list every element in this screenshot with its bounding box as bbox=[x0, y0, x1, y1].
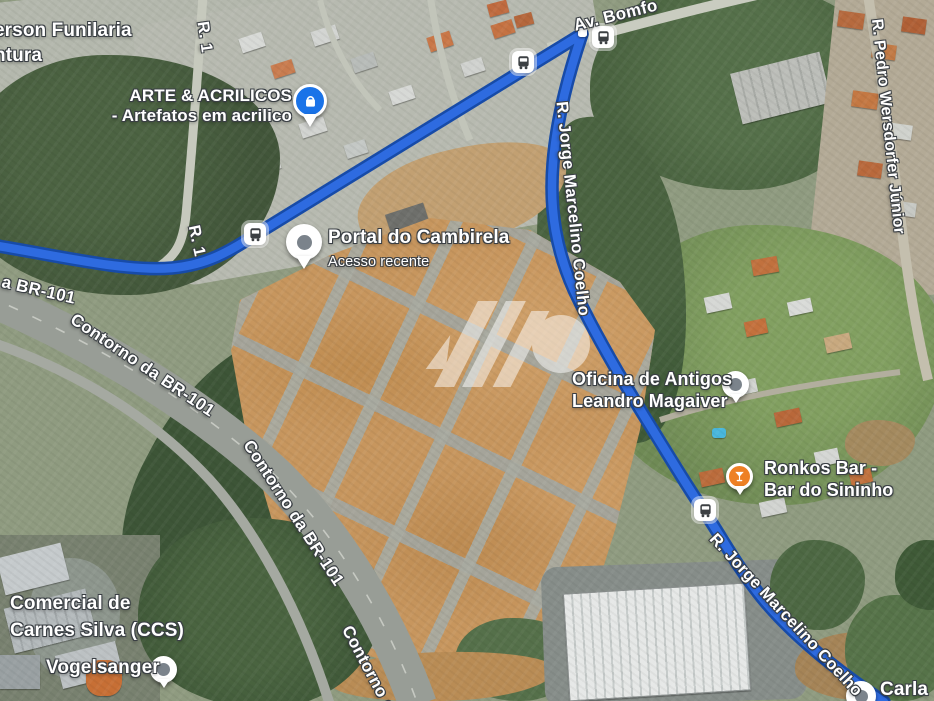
shopping-pin-head bbox=[293, 84, 327, 118]
poi-label-ccs[interactable]: Comercial de Carnes Silva (CCS) bbox=[10, 590, 184, 644]
poi-label-funilaria[interactable]: erson Funilaria ntura bbox=[0, 18, 132, 68]
recent-place-pin[interactable] bbox=[286, 224, 322, 269]
shopping-bag-icon bbox=[302, 93, 319, 110]
poi-name-line: ntura bbox=[0, 45, 42, 66]
pin-center-dot bbox=[297, 235, 312, 250]
poi-label-ronkos-bar[interactable]: Ronkos Bar - Bar do Sininho bbox=[764, 457, 893, 501]
poi-name-line: Portal do Cambirela bbox=[328, 227, 509, 248]
bus-stop-icon[interactable] bbox=[694, 499, 716, 521]
poi-name-line: erson Funilaria bbox=[0, 20, 132, 41]
poi-name-line: ARTE & ACRILICOS bbox=[130, 86, 292, 105]
poi-label-portal-cambirela[interactable]: Portal do Cambirela Acesso recente bbox=[328, 227, 509, 273]
pin-tail bbox=[302, 114, 318, 127]
poi-label-arte-acrilicos[interactable]: ARTE & ACRILICOS - Artefatos em acrilico bbox=[96, 86, 292, 125]
poi-subtitle: Acesso recente bbox=[328, 251, 509, 273]
pin-tail bbox=[296, 256, 312, 269]
poi-name-line: Bar do Sininho bbox=[764, 480, 893, 500]
pin-tail bbox=[158, 679, 170, 688]
poi-name-line: Ronkos Bar - bbox=[764, 458, 877, 478]
road-minor bbox=[320, 0, 380, 110]
satellite-map[interactable]: R. 1 R. 1 Av. Bomfo a BR-101 Contorno da… bbox=[0, 0, 934, 701]
poi-label-carla[interactable]: Carla bbox=[880, 679, 928, 701]
poi-name-line: Comercial de bbox=[10, 593, 131, 614]
poi-label-vogelsanger[interactable]: Vogelsanger bbox=[46, 657, 160, 679]
poi-name-line: Carnes Silva (CCS) bbox=[10, 620, 184, 641]
poi-label-oficina[interactable]: Oficina de Antigos Leandro Magaiver bbox=[572, 368, 732, 412]
bar-pin[interactable] bbox=[726, 463, 754, 495]
shopping-pin[interactable] bbox=[293, 84, 329, 127]
bus-stop-icon[interactable] bbox=[244, 223, 266, 245]
recent-place-pin-head bbox=[286, 224, 322, 260]
cocktail-icon bbox=[732, 469, 747, 484]
pin-tail bbox=[734, 486, 746, 495]
bus-stop-icon[interactable] bbox=[512, 51, 534, 73]
poi-name-line: - Artefatos em acrilico bbox=[112, 106, 292, 125]
poi-name-line: Leandro Magaiver bbox=[572, 391, 728, 411]
poi-name-line: Oficina de Antigos bbox=[572, 369, 732, 389]
